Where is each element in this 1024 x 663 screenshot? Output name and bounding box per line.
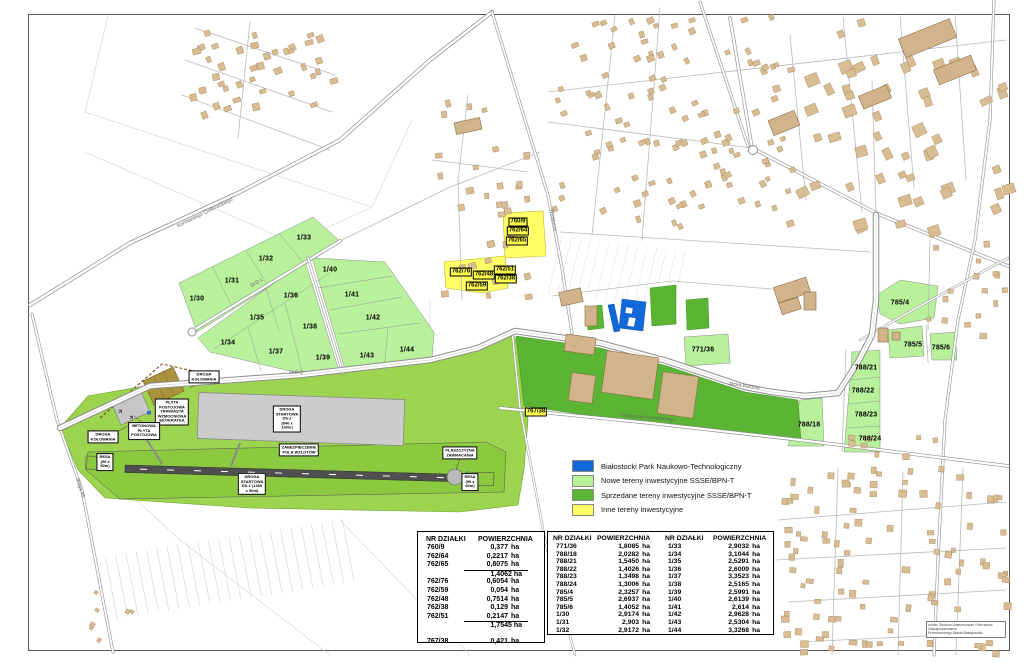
legend-label: Białostocki Park Naukowo-Technologiczny bbox=[601, 462, 741, 471]
apron-structure bbox=[147, 411, 151, 415]
legend-label: Nowe tereny inwestycyjne SSSE/BPN-T bbox=[601, 476, 734, 485]
airfield-info-box: BETONOWA PŁYTA POSTOJOWA bbox=[128, 422, 160, 440]
parcel-number-label: 1/44 bbox=[400, 347, 414, 354]
parcel-number: 788/23 bbox=[548, 573, 592, 581]
parcel-number-label: 1/39 bbox=[316, 355, 330, 362]
table-row: 760/90,377ha bbox=[418, 544, 544, 553]
road-name-label: 1KD-Z bbox=[289, 370, 304, 377]
parcel-number-label: 1/34 bbox=[221, 340, 235, 347]
area-unit: ha bbox=[752, 589, 760, 597]
parcel-number: 785/6 bbox=[548, 604, 592, 612]
table-header: NR DZIAŁKIPOWIERZCHNIANR DZIAŁKIPOWIERZC… bbox=[548, 534, 773, 543]
table-row: 785/52,6937ha1/402,6139ha bbox=[548, 596, 773, 604]
subtotal-row: 1,7545 ha bbox=[418, 621, 544, 630]
area-value: 2,903 bbox=[622, 619, 639, 627]
area-value: 0,2147 bbox=[466, 613, 508, 622]
table-row: 762/480,7514ha bbox=[418, 596, 544, 605]
subtotal-row: 1,4062 ha bbox=[418, 570, 544, 579]
table-row: 788/231,3498ha1/373,3523ha bbox=[548, 573, 773, 581]
parcel-number: 762/76 bbox=[418, 578, 466, 587]
attribution-note: źródło: Studium Uwarunkowań i Kierunków … bbox=[926, 621, 1006, 638]
area-unit: ha bbox=[642, 558, 650, 566]
area-value: 2,3257 bbox=[618, 589, 639, 597]
parcel-number: 1/35 bbox=[660, 558, 708, 566]
area-value: 2,6009 bbox=[728, 566, 749, 574]
parcel-number-label: 785/4 bbox=[891, 300, 910, 307]
table-row: 1/322,9172ha1/443,3268ha bbox=[548, 627, 773, 635]
table-row: 771/361,8085ha1/332,9032ha bbox=[548, 543, 773, 551]
parcel-number-label: 785/5 bbox=[904, 342, 923, 349]
parcel-number-label: 1/40 bbox=[323, 267, 337, 274]
area-value: 1,4026 bbox=[618, 566, 639, 574]
area-unit: ha bbox=[508, 544, 526, 553]
parcel-number: 760/9 bbox=[418, 544, 466, 553]
parcel-number: 1/37 bbox=[660, 573, 708, 581]
parcel-number: 1/30 bbox=[548, 611, 592, 619]
area-unit: ha bbox=[642, 543, 650, 551]
parcel-number-label: 1/35 bbox=[250, 315, 264, 322]
area-unit: ha bbox=[752, 551, 760, 559]
parcel-number: 785/4 bbox=[548, 589, 592, 597]
airfield-info-box: RESA (90 x 60m) bbox=[96, 453, 113, 471]
parcel-area-table-small: NR DZIAŁKIPOWIERZCHNIA760/90,377ha762/64… bbox=[417, 531, 545, 643]
parcel-number: 788/24 bbox=[548, 581, 592, 589]
legend: Białostocki Park Naukowo-TechnologicznyN… bbox=[570, 459, 757, 521]
area-unit: ha bbox=[752, 596, 760, 604]
roundabout bbox=[188, 328, 196, 336]
airfield-info-box: PŁYTA POSTOJOWA TRAWIASTA WZMOCNIONA EKO… bbox=[155, 399, 189, 426]
table-row: 762/650,8075ha bbox=[418, 561, 544, 570]
area-value: 2,6937 bbox=[618, 596, 639, 604]
parcel-number-box: 762/65 bbox=[506, 237, 528, 246]
parcel-number: 762/51 bbox=[418, 613, 466, 622]
parcel-number-label: 788/18 bbox=[798, 422, 821, 429]
area-unit: ha bbox=[752, 604, 760, 612]
area-value: 3,1044 bbox=[728, 551, 749, 559]
area-value: 3,3268 bbox=[728, 627, 749, 635]
area-value: 0,129 bbox=[466, 604, 508, 613]
parcel-number-label: 1/33 bbox=[297, 235, 311, 242]
airfield-info-box: DROGA STARTOWA DS-1 (1300 x 50m) bbox=[238, 473, 266, 495]
parcel-number: 1/43 bbox=[660, 619, 708, 627]
table-row: 762/760,6054ha bbox=[418, 578, 544, 587]
parcel-number: 785/5 bbox=[548, 596, 592, 604]
area-value: 3,3523 bbox=[728, 573, 749, 581]
area-unit: ha bbox=[752, 581, 760, 589]
table-row: 762/590,054ha bbox=[418, 587, 544, 596]
area-value: 2,5304 bbox=[728, 619, 749, 627]
parcel-number: 1/32 bbox=[548, 627, 592, 635]
parcel-number: 771/36 bbox=[548, 543, 592, 551]
legend-swatch bbox=[572, 460, 594, 472]
parcel-number: 762/65 bbox=[418, 561, 466, 570]
area-unit: ha bbox=[508, 587, 526, 596]
parcel-number-box: 760/9 bbox=[508, 218, 527, 227]
area-value: 0,054 bbox=[466, 587, 508, 596]
area-unit: ha bbox=[642, 604, 650, 612]
table-row: 762/380,129ha bbox=[418, 604, 544, 613]
area-value: 2,5991 bbox=[728, 589, 749, 597]
table-row: 1/312,903ha1/432,5304ha bbox=[548, 619, 773, 627]
parcel-number-box: 762/51 bbox=[494, 266, 516, 275]
parcel-number-label: 788/21 bbox=[855, 365, 878, 372]
table-row: 767/380,421ha bbox=[418, 638, 544, 647]
parcel-number-label: 1/32 bbox=[259, 256, 273, 263]
parcel-number: 1/33 bbox=[660, 543, 708, 551]
bpnt-area bbox=[608, 299, 646, 332]
parcel-number: 1/36 bbox=[660, 566, 708, 574]
table-header-cell: NR DZIAŁKI bbox=[660, 534, 708, 543]
area-unit: ha bbox=[642, 573, 650, 581]
attribution-line: źródło: Studium Uwarunkowań i Kierunków … bbox=[928, 623, 1004, 631]
area-value: 0,6054 bbox=[466, 578, 508, 587]
parcel-number-box: 767/38 bbox=[525, 408, 547, 417]
area-unit: ha bbox=[752, 543, 760, 551]
area-value: 1,4052 bbox=[618, 604, 639, 612]
area-unit: ha bbox=[642, 627, 650, 635]
area-value: 0,421 bbox=[466, 638, 508, 647]
parcel-number-label: 771/36 bbox=[692, 347, 715, 354]
area-unit: ha bbox=[752, 566, 760, 574]
airfield-info-box: RESA (90 x 60m) bbox=[461, 473, 478, 491]
table-row: 788/182,0282ha1/343,1044ha bbox=[548, 551, 773, 559]
parcel-area-table-large: NR DZIAŁKIPOWIERZCHNIANR DZIAŁKIPOWIERZC… bbox=[547, 531, 774, 635]
table-row: 788/211,5450ha1/352,5291ha bbox=[548, 558, 773, 566]
parcel-number: 762/48 bbox=[418, 596, 466, 605]
table-header: NR DZIAŁKIPOWIERZCHNIA bbox=[418, 535, 544, 544]
parcel-number: 1/42 bbox=[660, 611, 708, 619]
subtotal-value: 1,7545 ha bbox=[464, 621, 528, 631]
parcel-number: 1/39 bbox=[660, 589, 708, 597]
map-canvas: ✈ ✈ ✈ bbox=[0, 0, 1024, 663]
area-unit: ha bbox=[642, 566, 650, 574]
table-header-cell: NR DZIAŁKI bbox=[548, 534, 592, 543]
parcel-number-label: 788/23 bbox=[855, 412, 878, 419]
legend-item: Nowe tereny inwestycyjne SSSE/BPN-T bbox=[572, 476, 751, 486]
parcel-number: 1/44 bbox=[660, 627, 708, 635]
attribution-line: Przestrzennego Miasta Białegostoku bbox=[928, 631, 1004, 635]
legend-swatch bbox=[572, 504, 594, 516]
parcel-number-label: 1/30 bbox=[190, 296, 204, 303]
area-value: 1,3498 bbox=[618, 573, 639, 581]
area-value: 1,8085 bbox=[618, 543, 639, 551]
legend-swatch bbox=[572, 489, 594, 501]
parcel-number-label: 1/41 bbox=[345, 292, 359, 299]
parcel-number-box: 762/38 bbox=[495, 275, 517, 284]
airfield-info-box: DROGA STARTOWA DS-2 (840 x 160m) bbox=[273, 406, 301, 433]
area-value: 0,8075 bbox=[466, 561, 508, 570]
table-header-cell: NR DZIAŁKI bbox=[418, 535, 470, 544]
table-row: 762/640,2217ha bbox=[418, 553, 544, 562]
area-value: 2,9174 bbox=[618, 611, 639, 619]
parcel-number: 762/59 bbox=[418, 587, 466, 596]
area-value: 0,7514 bbox=[466, 596, 508, 605]
area-unit: ha bbox=[642, 596, 650, 604]
roundabout bbox=[749, 146, 758, 155]
parcel-number: 762/64 bbox=[418, 553, 466, 562]
parcel-number: 1/34 bbox=[660, 551, 708, 559]
area-unit: ha bbox=[752, 611, 760, 619]
area-value: 2,6139 bbox=[728, 596, 749, 604]
parcel-number-label: 1/37 bbox=[269, 349, 283, 356]
airfield-info-box: DROGA KOŁOWANIA bbox=[189, 370, 220, 383]
parcel-number: 767/38 bbox=[418, 638, 466, 647]
table-row: 785/42,3257ha1/392,5991ha bbox=[548, 589, 773, 597]
parcel-number-label: 1/42 bbox=[366, 315, 380, 322]
area-value: 1,3006 bbox=[618, 581, 639, 589]
area-unit: ha bbox=[752, 573, 760, 581]
table-row: 762/510,2147ha bbox=[418, 613, 544, 622]
area-unit: ha bbox=[752, 619, 760, 627]
parcel-number-label: 1/43 bbox=[360, 353, 374, 360]
table-header-cell: POWIERZCHNIA bbox=[470, 535, 540, 544]
legend-swatch bbox=[572, 475, 594, 487]
area-unit: ha bbox=[642, 581, 650, 589]
area-value: 0,377 bbox=[466, 544, 508, 553]
legend-item: Inne tereny inwestycyjne bbox=[572, 505, 751, 515]
parcel-number: 762/38 bbox=[418, 604, 466, 613]
area-unit: ha bbox=[642, 611, 650, 619]
area-unit: ha bbox=[642, 551, 650, 559]
area-unit: ha bbox=[508, 613, 526, 622]
legend-item: Sprzedane tereny inwestycyjne SSSE/BPN-T bbox=[572, 490, 751, 500]
area-unit: ha bbox=[508, 604, 526, 613]
area-value: 2,0282 bbox=[618, 551, 639, 559]
area-unit: ha bbox=[752, 558, 760, 566]
area-value: 2,614 bbox=[732, 604, 749, 612]
table-row: 785/61,4052ha1/412,614ha bbox=[548, 604, 773, 612]
parcel-number: 1/40 bbox=[660, 596, 708, 604]
area-unit: ha bbox=[508, 561, 526, 570]
parcel-number: 788/21 bbox=[548, 558, 592, 566]
parcel-number-label: 1/31 bbox=[225, 278, 239, 285]
parcel-number-label: 1/38 bbox=[303, 324, 317, 331]
legend-label: Sprzedane tereny inwestycyjne SSSE/BPN-T bbox=[601, 491, 751, 500]
area-value: 2,9032 bbox=[728, 543, 749, 551]
area-value: 1,5450 bbox=[618, 558, 639, 566]
parcel-number-box: 762/48 bbox=[473, 271, 495, 280]
area-unit: ha bbox=[752, 627, 760, 635]
area-value: 2,9172 bbox=[618, 627, 639, 635]
airfield-info-box: ZABEZPIECZENIE POLA WZLOTÓW bbox=[279, 443, 319, 456]
area-value: 2,5291 bbox=[728, 558, 749, 566]
legend-item: Białostocki Park Naukowo-Technologiczny bbox=[572, 461, 751, 471]
parcel-number-label: 788/22 bbox=[852, 388, 875, 395]
parcel-number: 1/41 bbox=[660, 604, 708, 612]
area-unit: ha bbox=[508, 596, 526, 605]
area-unit: ha bbox=[508, 553, 526, 562]
parcel-number: 788/22 bbox=[548, 566, 592, 574]
table-row: 788/241,3006ha1/382,5165ha bbox=[548, 581, 773, 589]
table-header-cell: POWIERZCHNIA bbox=[708, 534, 770, 543]
parcel-number: 1/31 bbox=[548, 619, 592, 627]
parcel-number-box: 762/59 bbox=[466, 282, 488, 291]
parcel-number-label: 785/6 bbox=[932, 345, 951, 352]
area-unit: ha bbox=[642, 619, 650, 627]
parcel-number-box: 762/76 bbox=[450, 268, 472, 277]
legend-label: Inne tereny inwestycyjne bbox=[601, 505, 683, 514]
airfield-info-box: PŁASZCZYZNA ZAWRACANIA bbox=[442, 446, 477, 459]
area-unit: ha bbox=[642, 589, 650, 597]
table-header-cell: POWIERZCHNIA bbox=[592, 534, 660, 543]
table-row: 788/221,4026ha1/362,6009ha bbox=[548, 566, 773, 574]
table-row: 1/302,9174ha1/422,9628ha bbox=[548, 611, 773, 619]
parcel-number: 788/18 bbox=[548, 551, 592, 559]
area-unit: ha bbox=[508, 638, 526, 647]
parcel-number: 1/38 bbox=[660, 581, 708, 589]
airfield-info-box: DROGA KOŁOWANIA bbox=[88, 430, 119, 443]
area-value: 2,5165 bbox=[728, 581, 749, 589]
parcel-number-label: 788/24 bbox=[859, 436, 882, 443]
area-value: 0,2217 bbox=[466, 553, 508, 562]
area-unit: ha bbox=[508, 578, 526, 587]
parcel-number-box: 762/64 bbox=[507, 227, 529, 236]
parcel-number-label: 1/36 bbox=[284, 293, 298, 300]
area-value: 2,9628 bbox=[728, 611, 749, 619]
